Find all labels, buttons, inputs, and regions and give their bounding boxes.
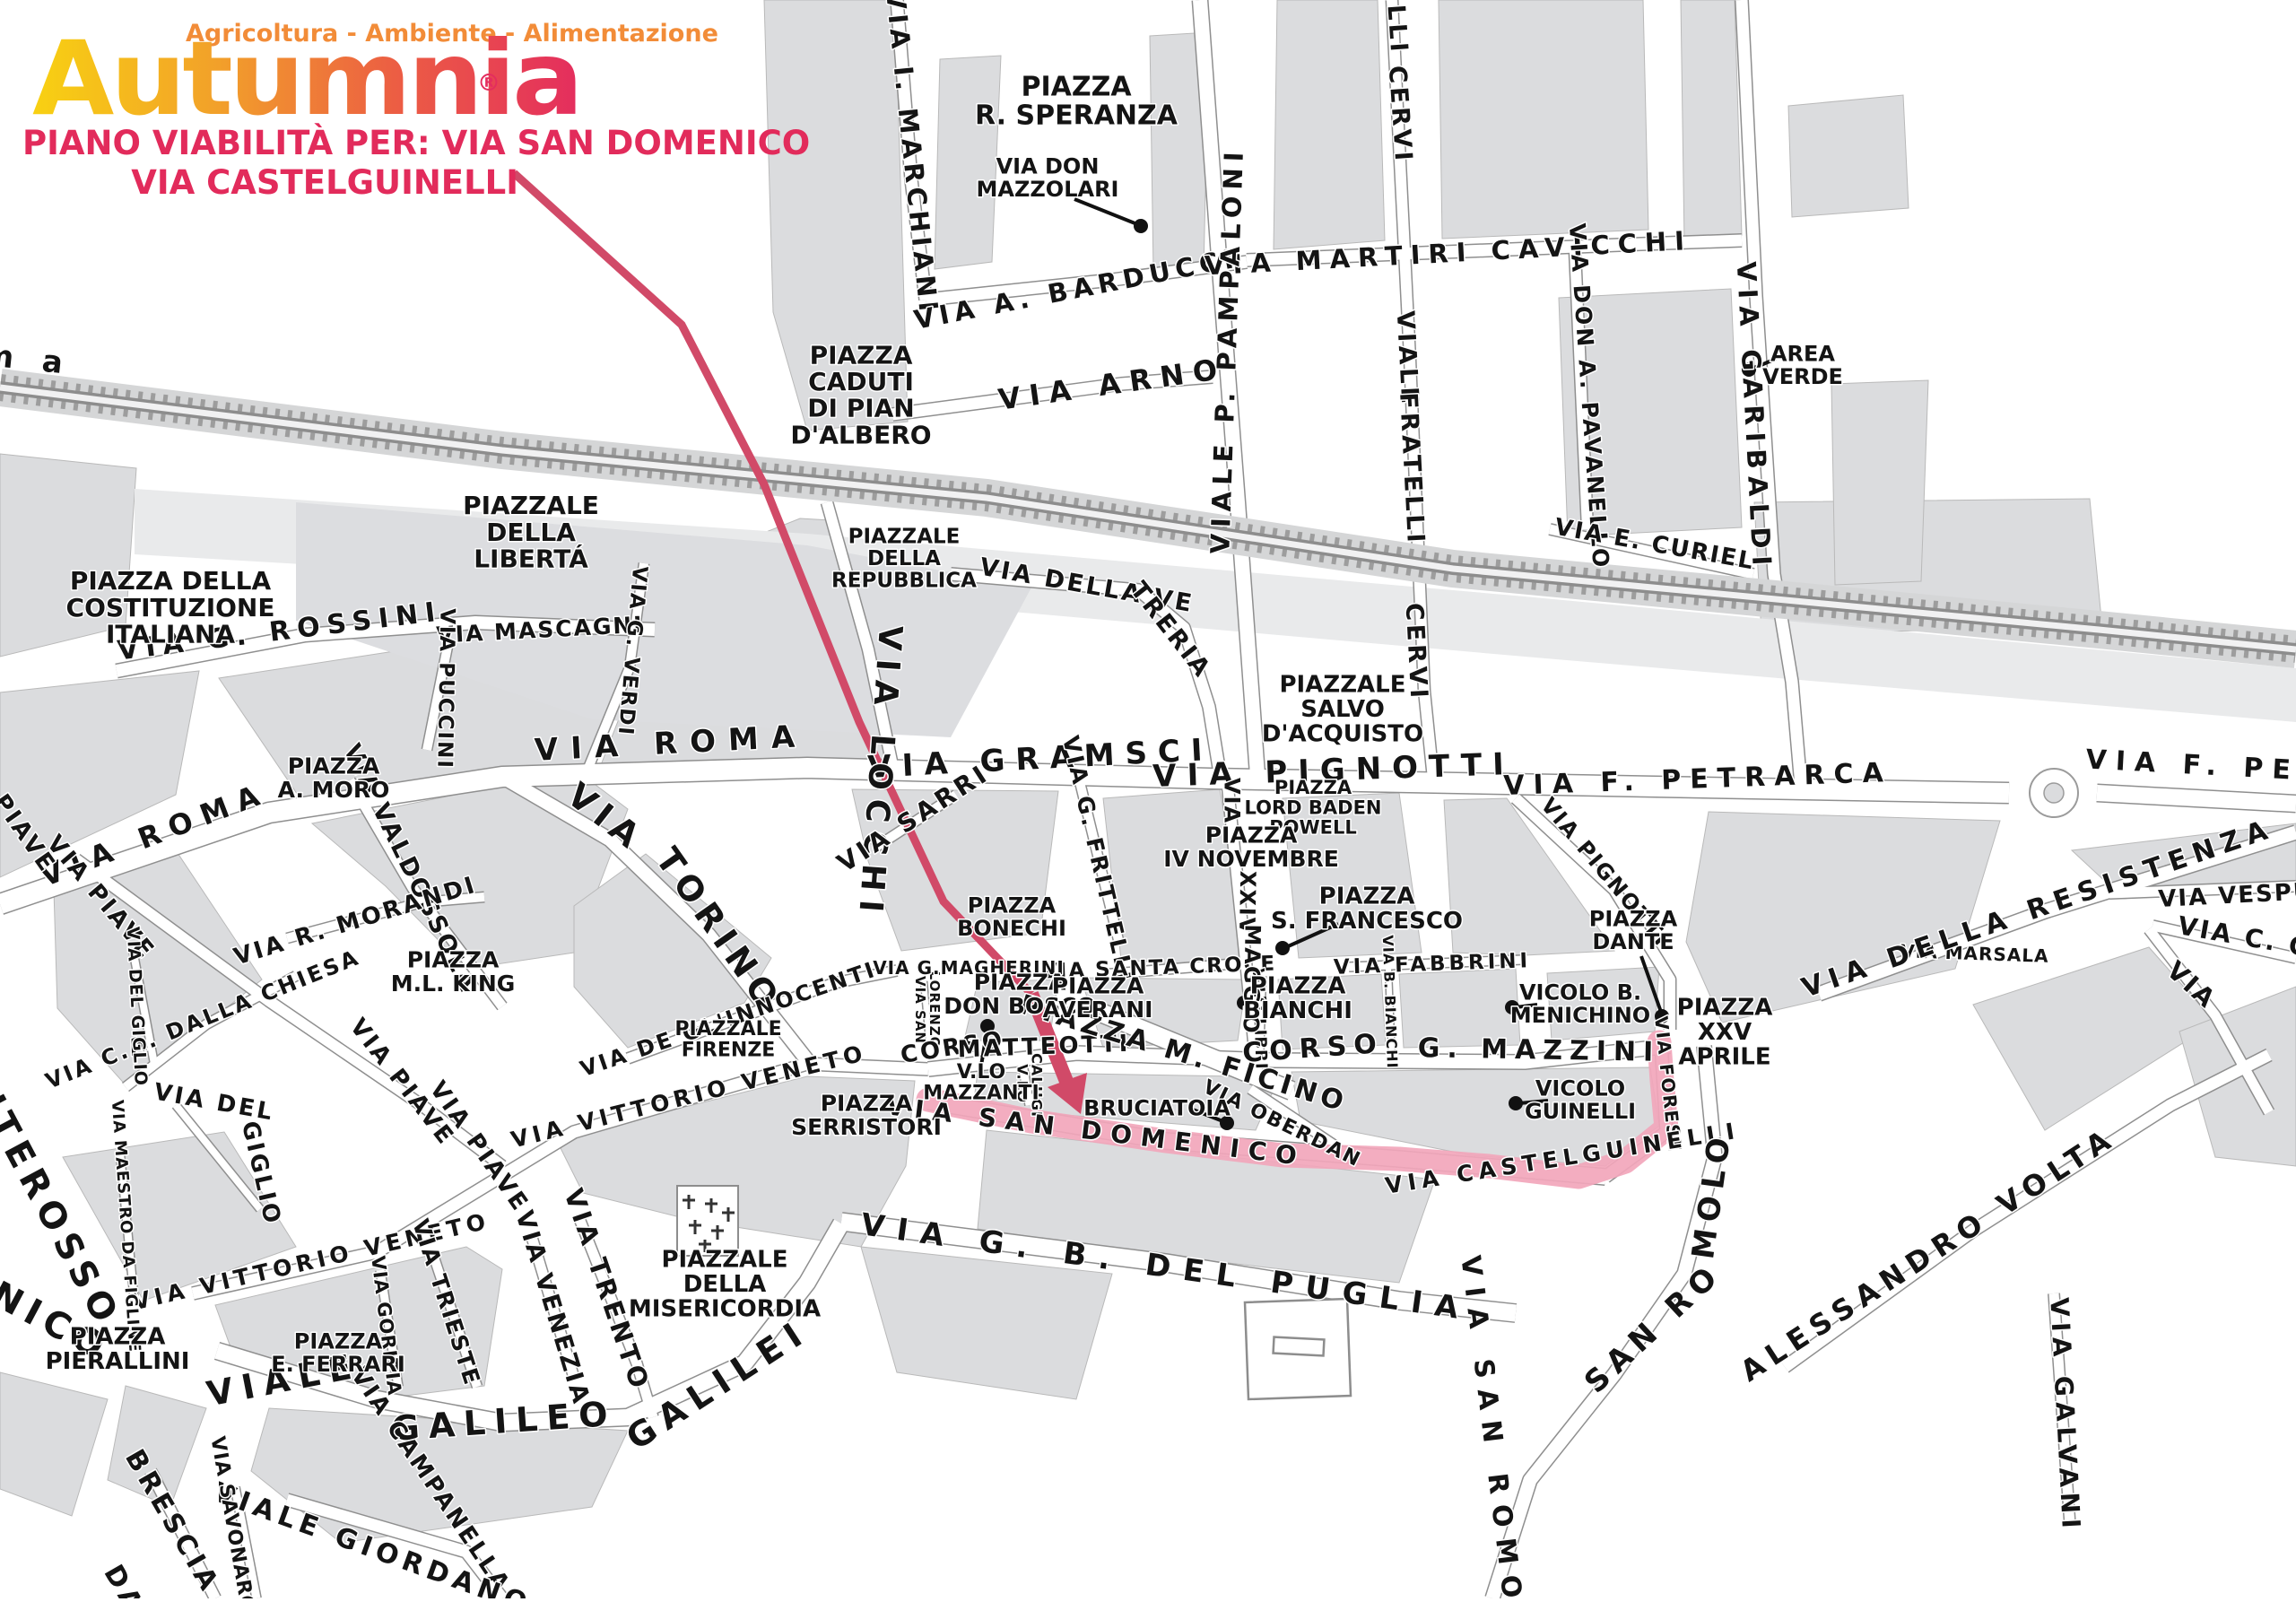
roundabout xyxy=(2030,769,2078,817)
street-label: SAN RO xyxy=(1578,1256,1729,1401)
city-block xyxy=(1788,95,1909,217)
city-block xyxy=(1439,0,1648,239)
cemetery-symbol xyxy=(677,1186,738,1256)
place-label: PIAZZAR. SPERANZA xyxy=(975,72,1178,132)
city-block xyxy=(1274,0,1385,249)
street-label: FRATELLI xyxy=(1394,392,1430,547)
street-label: VIA SAN xyxy=(912,976,928,1044)
street-label: VIA ARNO xyxy=(996,352,1229,417)
place-label: PIAZZABIANCHI xyxy=(1243,972,1352,1024)
city-block xyxy=(0,1372,108,1516)
street-label: VIA xyxy=(1220,778,1245,824)
place-label: PIAZZALESALVOD'ACQUISTO xyxy=(1262,672,1423,748)
registered-trademark-icon: ® xyxy=(477,70,500,97)
place-label: VICOLO B.MENICHINO xyxy=(1510,980,1650,1028)
place-label: PIAZZADANTE xyxy=(1589,907,1678,954)
place-label: PIAZZABONECHI xyxy=(957,893,1066,941)
street-fill xyxy=(2097,793,2296,804)
street-label: CERVI xyxy=(1383,65,1418,165)
place-label: PIAZZAAVERANI xyxy=(1043,973,1153,1023)
place-label: VICOLOGUINELLI xyxy=(1525,1076,1636,1124)
place-label: BRUCIATOIA xyxy=(1083,1095,1231,1120)
place-label: PIAZZAXXVAPRILE xyxy=(1677,995,1773,1071)
place-label: VIA DONMAZZOLARI xyxy=(977,154,1119,202)
place-label: PIAZZAA. MORO xyxy=(278,753,390,804)
place-label: PIAZZAM.L. KING xyxy=(391,947,516,997)
street-label: m a xyxy=(0,337,74,382)
poi-dot xyxy=(1134,219,1148,233)
city-block xyxy=(1444,798,1614,955)
street-label: VIA GALVANI xyxy=(2044,1297,2086,1535)
place-label: PIAZZALEDELLAMISERICORDIA xyxy=(629,1247,821,1323)
place-label: PIAZZACADUTIDI PIAND'ALBERO xyxy=(790,340,931,449)
street-label: ELLI xyxy=(1380,0,1413,57)
poi-dot xyxy=(1509,1096,1523,1110)
plan-title-line1: PIANO VIABILITÀ PER: VIA SAN DOMENICO xyxy=(22,124,810,162)
building-outline xyxy=(1245,1299,1351,1399)
city-map: m aVIA I. MARCHIANIVIA A. BARDUCCIVIA MA… xyxy=(0,0,2296,1598)
street-label: VIA PUCCINI xyxy=(432,608,458,770)
poi-dot xyxy=(1275,941,1290,955)
plan-title-line2: VIA CASTELGUINELLI xyxy=(0,163,518,202)
map-graphics: m aVIA I. MARCHIANIVIA A. BARDUCCIVIA MA… xyxy=(0,0,2296,1598)
street-label: G. MAZZINI xyxy=(1417,1032,1660,1068)
street-label: VIA F. PET xyxy=(2085,744,2296,788)
city-block xyxy=(935,56,1001,269)
place-label: PIAZZALEFIRENZE xyxy=(674,1018,781,1061)
city-block xyxy=(1681,0,1742,242)
street-label: DA xyxy=(97,1560,150,1598)
street-label: VIA C. C xyxy=(2176,910,2296,962)
place-label: AREAVERDE xyxy=(1762,342,1843,389)
city-block xyxy=(1831,380,1928,585)
leader-line xyxy=(1074,199,1137,224)
